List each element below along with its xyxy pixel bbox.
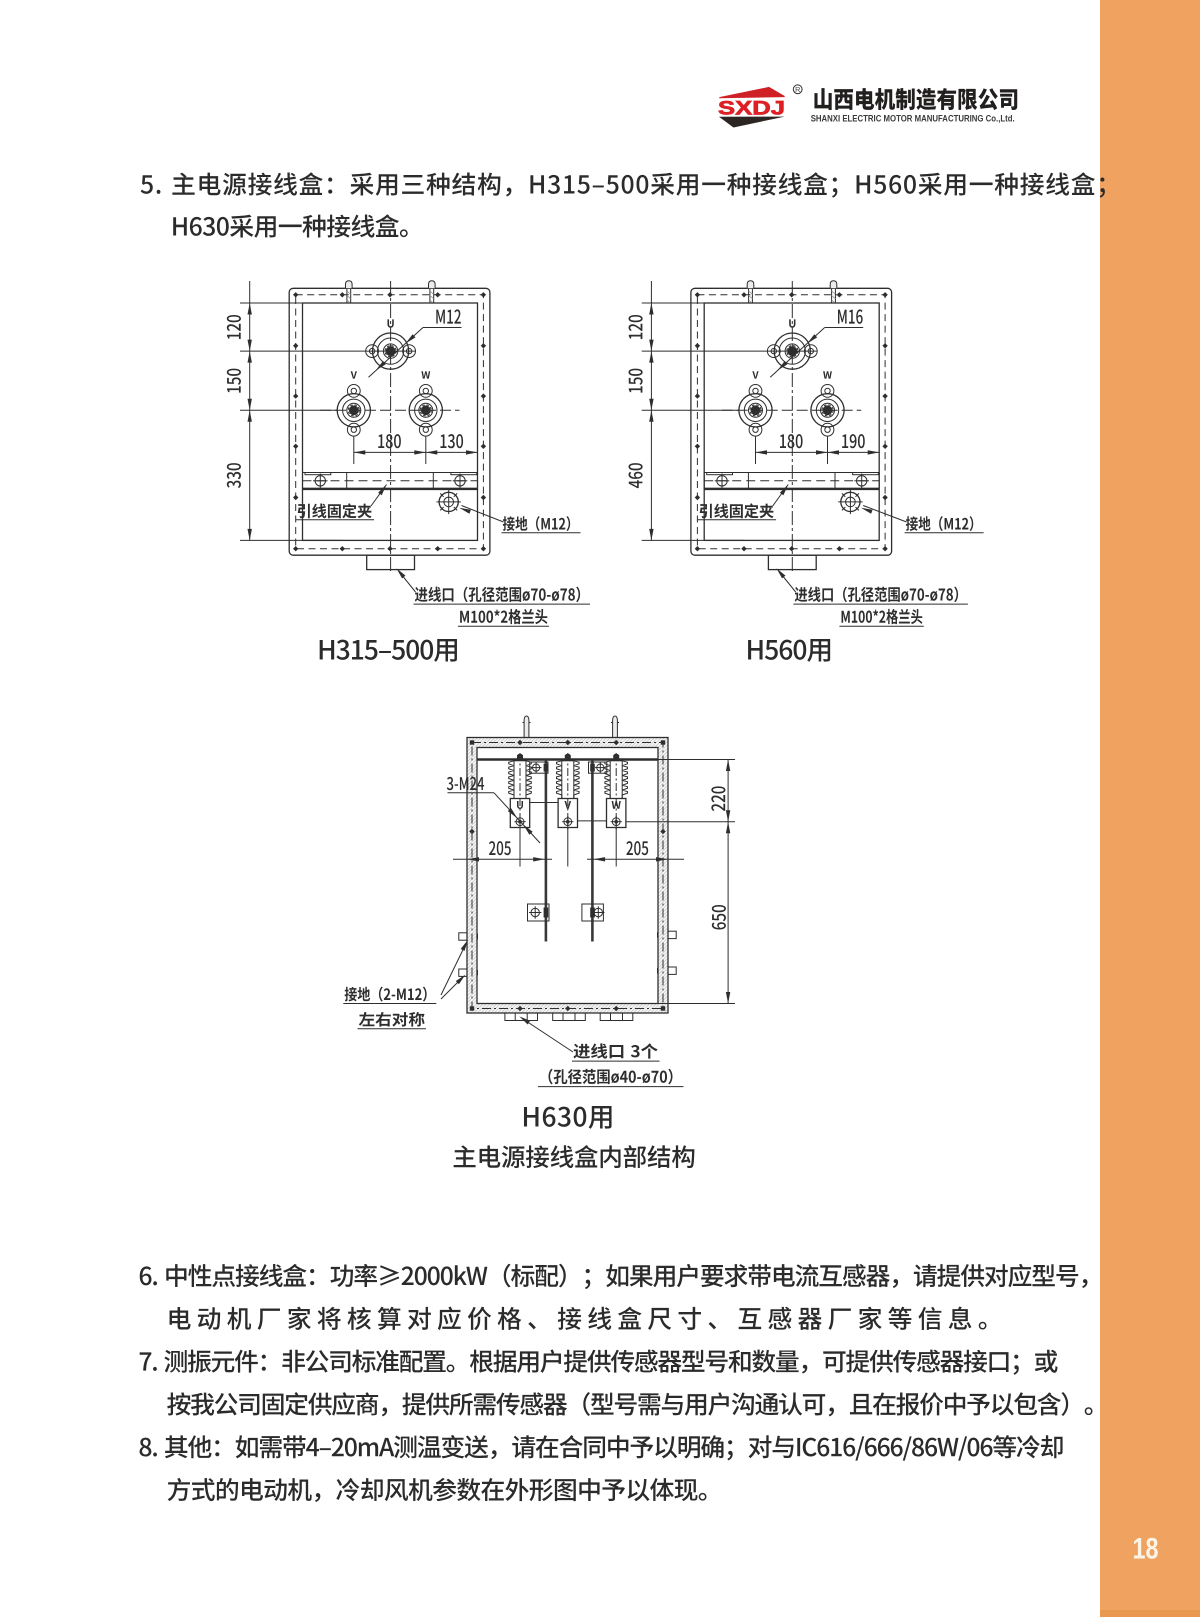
svg-text:SXDJ: SXDJ bbox=[718, 98, 785, 119]
svg-text:SHANXI ELECTRIC MOTOR MANUFACT: SHANXI ELECTRIC MOTOR MANUFACTURING Co.,… bbox=[811, 113, 1015, 124]
svg-text:R: R bbox=[795, 85, 800, 94]
svg-text:18: 18 bbox=[1133, 1533, 1159, 1566]
